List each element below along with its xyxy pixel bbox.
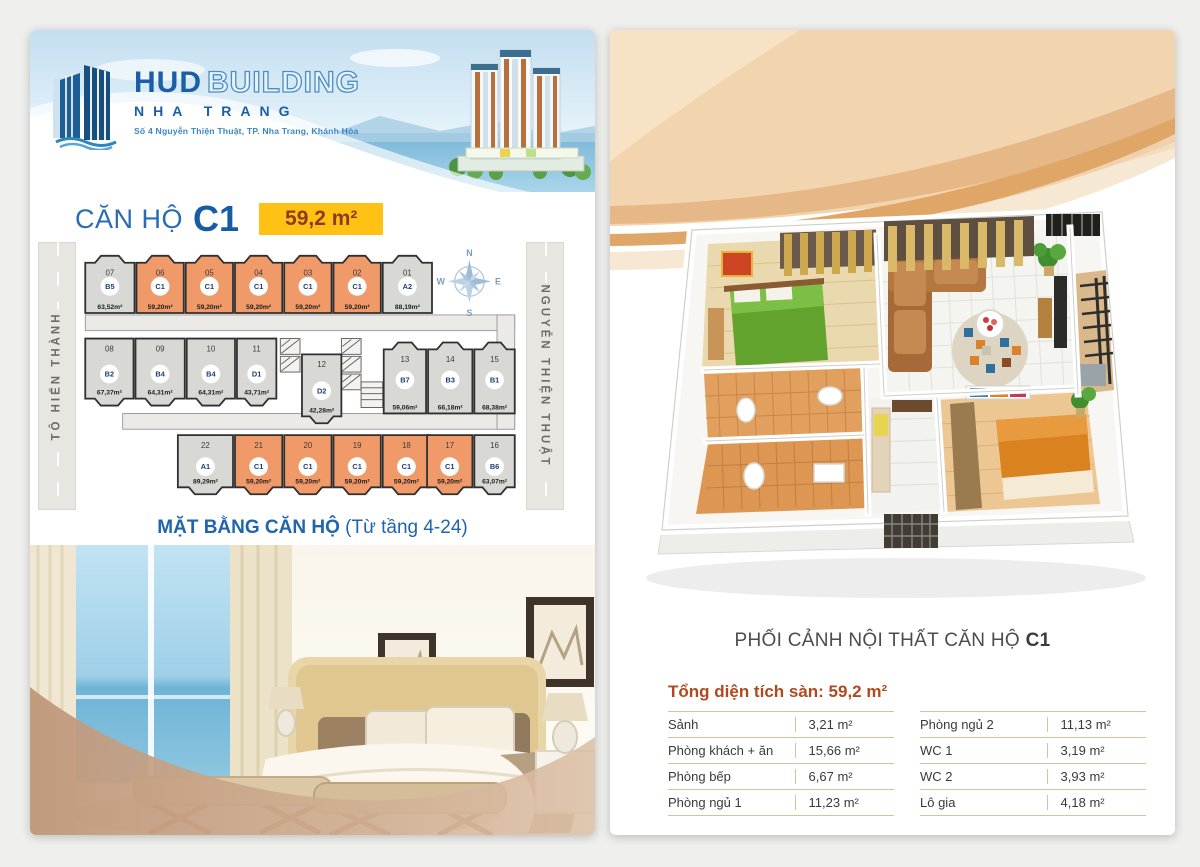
unit-type: C1	[155, 282, 164, 291]
area-table-col-right: Phòng ngủ 211,13 m²WC 13,19 m²WC 23,93 m…	[920, 711, 1146, 816]
area-row-label: Phòng khách + ăn	[668, 743, 795, 758]
brand-sub: BUILDING	[207, 66, 360, 99]
area-table-columns: Sảnh3,21 m²Phòng khách + ăn15,66 m²Phòng…	[668, 711, 1146, 816]
unit-area: 59,20m²	[295, 478, 321, 485]
unit-type: C1	[254, 462, 263, 471]
unit-area: 59,20m²	[345, 478, 371, 485]
unit-area: 88,19m²	[395, 304, 421, 311]
unit-type: C1	[303, 282, 312, 291]
unit-number: 17	[445, 441, 454, 450]
brand-name: HUDBUILDING	[134, 68, 360, 98]
unit-number: 13	[401, 355, 410, 364]
unit-type: A2	[403, 282, 412, 291]
floorplan-unit: 12D242,28m²	[302, 354, 341, 423]
area-row-value: 3,19 m²	[1047, 743, 1146, 758]
compass-icon: N S W E	[437, 248, 501, 318]
unit-number: 09	[156, 344, 165, 353]
bedroom-photo	[30, 545, 595, 835]
unit-type: B4	[206, 370, 216, 379]
area-row: Phòng bếp6,67 m²	[668, 764, 894, 790]
kitchen	[864, 398, 940, 514]
unit-area: 42,28m²	[309, 407, 335, 414]
street-left: TÔ HIẾN THÀNH	[38, 242, 76, 510]
apartment-area-badge: 59,2 m²	[259, 203, 383, 235]
area-row-value: 11,23 m²	[795, 795, 894, 810]
floorplan-unit: 20C159,20m²	[284, 435, 331, 494]
bathtub	[744, 463, 764, 489]
unit-number: 06	[156, 269, 165, 278]
unit-type: B7	[400, 376, 409, 385]
area-row: Phòng khách + ăn15,66 m²	[668, 738, 894, 764]
area-row: Phòng ngủ 211,13 m²	[920, 712, 1146, 738]
unit-number: 12	[317, 360, 326, 369]
unit-area: 67,37m²	[97, 390, 123, 397]
floorplan-unit: 21C159,20m²	[235, 435, 282, 494]
render-shadow	[646, 558, 1146, 598]
entry-door	[884, 514, 938, 548]
page-right: PHỐI CẢNH NỘI THẤT CĂN HỘ C1 Tổng diện t…	[610, 30, 1175, 835]
unit-number: 01	[403, 269, 412, 278]
floorplan-svg: 07B563,52m²06C159,20m²05C159,20m²04C159,…	[82, 244, 518, 508]
floorplan-unit: 01A288,19m²	[383, 256, 432, 313]
lamp-base	[553, 721, 577, 753]
coffee-table	[976, 310, 1004, 338]
render-caption: PHỐI CẢNH NỘI THẤT CĂN HỘ C1	[610, 630, 1175, 652]
tower-center	[500, 50, 531, 159]
dresser	[708, 308, 724, 360]
unit-type: C1	[402, 462, 411, 471]
area-row: Phòng ngủ 111,23 m²	[668, 790, 894, 816]
area-row-label: Sảnh	[668, 717, 795, 732]
street-left-label: TÔ HIẾN THÀNH	[47, 309, 67, 442]
unit-type: D1	[252, 370, 261, 379]
street-right-label: NGUYỄN THIỆN THUẬT	[535, 282, 555, 469]
compass-n: N	[466, 248, 472, 258]
sink	[818, 387, 842, 405]
floorplan: TÔ HIẾN THÀNH NGUYỄN THIỆN THUẬT	[38, 242, 587, 510]
unit-type: C1	[254, 282, 263, 291]
floorplan-caption-normal: (Từ tầng 4-24)	[345, 517, 468, 538]
area-row-label: Phòng bếp	[668, 769, 795, 784]
floorplan-caption-bold: MẶT BẰNG CĂN HỘ	[157, 517, 340, 538]
unit-type: C1	[205, 282, 214, 291]
floorplan-unit: 02C159,20m²	[333, 256, 380, 313]
area-row: Sảnh3,21 m²	[668, 712, 894, 738]
unit-area: 64,31m²	[148, 390, 174, 397]
tv-cabinet	[1054, 276, 1067, 348]
compass-s: S	[466, 308, 472, 318]
unit-type: B5	[105, 282, 114, 291]
unit-number: 02	[353, 269, 362, 278]
unit-type: C1	[303, 462, 312, 471]
floorplan-unit: 16B663,07m²	[474, 435, 514, 494]
area-row-value: 4,18 m²	[1047, 795, 1146, 810]
media-shelf	[1038, 298, 1052, 338]
wc-1	[704, 368, 864, 440]
unit-area: 59,20m²	[197, 304, 223, 311]
floorplan-unit: 18C159,20m²	[383, 435, 430, 494]
floorplan-unit: 06C159,20m²	[136, 256, 183, 313]
unit-type: A1	[201, 462, 210, 471]
area-row-label: Phòng ngủ 1	[668, 795, 795, 810]
interior-render	[634, 158, 1156, 613]
oven-light	[874, 414, 888, 436]
area-row-value: 3,93 m²	[1047, 769, 1146, 784]
floorplan-unit: 19C159,20m²	[333, 435, 380, 494]
area-row-value: 3,21 m²	[795, 717, 894, 732]
bed-orange	[996, 414, 1094, 500]
compass-w: W	[437, 276, 446, 286]
area-table-title: Tổng diện tích sàn: 59,2 m²	[668, 682, 1146, 702]
area-row-label: Lô gia	[920, 795, 1047, 810]
brand-line2: NHA TRANG	[134, 103, 360, 119]
unit-type: B4	[155, 370, 165, 379]
floorplan-caption: MẶT BẰNG CĂN HỘ (Từ tầng 4-24)	[30, 517, 595, 539]
area-row-label: WC 2	[920, 769, 1047, 784]
unit-area: 59,20m²	[345, 304, 371, 311]
area-table-col-left: Sảnh3,21 m²Phòng khách + ăn15,66 m²Phòng…	[668, 711, 894, 816]
area-row-label: Phòng ngủ 2	[920, 717, 1047, 732]
area-row-value: 6,67 m²	[795, 769, 894, 784]
unit-area: 66,18m²	[438, 404, 464, 411]
unit-area: 59,20m²	[148, 304, 174, 311]
unit-area: 59,06m²	[392, 404, 418, 411]
unit-type: C1	[445, 462, 454, 471]
unit-area: 43,71m²	[244, 390, 270, 397]
floorplan-unit: 03C159,20m²	[284, 256, 331, 313]
unit-area: 59,20m²	[246, 304, 272, 311]
floorplan-unit: 13B759,06m²	[384, 343, 426, 414]
floorplan-unit: 22A189,29m²	[178, 435, 233, 494]
area-row-value: 15,66 m²	[795, 743, 894, 758]
unit-number: 21	[254, 441, 263, 450]
logo-address: Số 4 Nguyễn Thiện Thuật, TP. Nha Trang, …	[134, 126, 360, 136]
area-row-label: WC 1	[920, 743, 1047, 758]
brand-main: HUD	[134, 66, 202, 99]
area-row: WC 23,93 m²	[920, 764, 1146, 790]
unit-area: 68,38m²	[482, 404, 508, 411]
render-caption-code: C1	[1026, 630, 1051, 651]
street-right: NGUYỄN THIỆN THUẬT	[526, 242, 564, 510]
floorplan-unit: 11D143,71m²	[237, 339, 276, 406]
unit-number: 22	[201, 441, 210, 450]
unit-number: 04	[254, 269, 263, 278]
bedroom-2	[936, 386, 1100, 512]
apartment-title-label: CĂN HỘ	[75, 204, 183, 235]
document: { "colors": { "accent_blue": "#1f65ae", …	[0, 0, 1200, 867]
area-row-value: 11,13 m²	[1047, 717, 1146, 732]
unit-number: 05	[205, 269, 214, 278]
lamp-shade	[542, 693, 588, 721]
render-caption-text: PHỐI CẢNH NỘI THẤT CĂN HỘ	[735, 630, 1021, 651]
floorplan-unit: 07B563,52m²	[85, 256, 134, 313]
area-row: Lô gia4,18 m²	[920, 790, 1146, 816]
unit-type: D2	[317, 386, 326, 395]
unit-area: 59,20m²	[437, 478, 463, 485]
shower-tray	[814, 464, 844, 482]
unit-area: 59,20m²	[246, 478, 272, 485]
unit-area: 89,29m²	[193, 478, 219, 485]
unit-number: 11	[253, 344, 261, 353]
floorplan-unit: 10B464,31m²	[187, 339, 235, 406]
unit-number: 14	[446, 355, 455, 364]
unit-type: B6	[490, 462, 499, 471]
retail-base	[466, 148, 578, 158]
unit-type: C1	[352, 282, 361, 291]
unit-area: 63,07m²	[482, 478, 508, 485]
wall-painting-red	[722, 252, 752, 276]
unit-type: B3	[446, 376, 455, 385]
compass-e: E	[495, 276, 501, 286]
unit-number: 08	[105, 344, 114, 353]
floorplan-unit: 08B267,37m²	[85, 339, 133, 406]
floorplan-units: 07B563,52m²06C159,20m²05C159,20m²04C159,…	[85, 256, 514, 494]
floorplan-unit: 15B168,38m²	[474, 343, 514, 414]
unit-type: B1	[490, 376, 499, 385]
laundry-unit	[1080, 364, 1106, 386]
apartment-title: CĂN HỘ C1 59,2 m²	[75, 198, 383, 240]
unit-number: 18	[402, 441, 411, 450]
apartment-title-code: C1	[193, 198, 239, 240]
unit-number: 07	[105, 269, 114, 278]
area-row: WC 13,19 m²	[920, 738, 1146, 764]
tower-right	[533, 68, 560, 159]
tower-left	[471, 64, 498, 159]
upper-cabinet	[892, 400, 932, 412]
unit-number: 15	[490, 355, 499, 364]
unit-type: B2	[105, 370, 114, 379]
unit-area: 59,20m²	[394, 478, 420, 485]
stairs	[361, 382, 383, 408]
area-table: Tổng diện tích sàn: 59,2 m² Sảnh3,21 m²P…	[668, 682, 1146, 816]
floorplan-unit: 09B464,31m²	[135, 339, 184, 406]
unit-area: 59,20m²	[295, 304, 321, 311]
bed-green	[724, 278, 828, 366]
floorplan-unit: 04C159,20m²	[235, 256, 282, 313]
floorplan-unit: 17C159,20m²	[427, 435, 472, 494]
floorplan-unit: 05C159,20m²	[186, 256, 233, 313]
unit-type: C1	[352, 462, 361, 471]
floorplan-unit: 14B366,18m²	[428, 343, 472, 414]
unit-number: 19	[353, 441, 362, 450]
unit-area: 63,52m²	[97, 304, 123, 311]
page-left: HUDBUILDING NHA TRANG Số 4 Nguyễn Thiện …	[30, 30, 595, 835]
unit-number: 03	[303, 269, 312, 278]
logo-building-icon	[52, 56, 122, 150]
logo: HUDBUILDING NHA TRANG Số 4 Nguyễn Thiện …	[52, 56, 412, 150]
unit-number: 16	[490, 441, 499, 450]
unit-number: 10	[206, 344, 215, 353]
unit-area: 64,31m²	[198, 390, 224, 397]
toilet	[737, 398, 755, 422]
unit-number: 20	[303, 441, 312, 450]
